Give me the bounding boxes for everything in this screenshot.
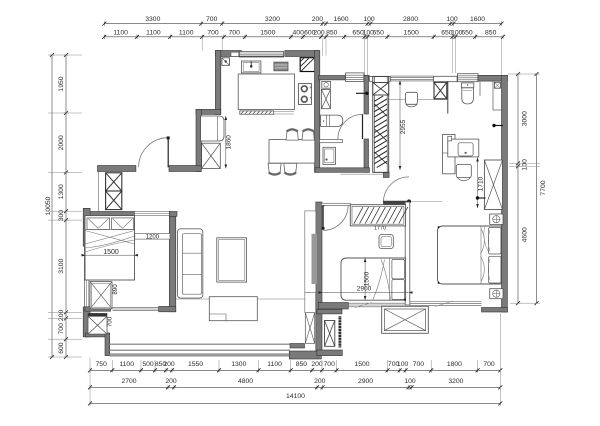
svg-text:1100: 1100 <box>146 29 161 36</box>
svg-text:1770: 1770 <box>374 226 386 232</box>
svg-text:500: 500 <box>142 361 154 368</box>
svg-text:100: 100 <box>404 378 416 385</box>
svg-text:1500: 1500 <box>354 361 369 368</box>
svg-text:1600: 1600 <box>470 16 485 23</box>
svg-text:100: 100 <box>446 16 458 23</box>
svg-text:3200: 3200 <box>265 16 280 23</box>
svg-text:850: 850 <box>485 29 497 36</box>
svg-text:1500: 1500 <box>260 29 275 36</box>
svg-text:650: 650 <box>461 29 473 36</box>
svg-text:1300: 1300 <box>231 361 246 368</box>
svg-text:700: 700 <box>58 323 65 335</box>
svg-text:1500: 1500 <box>404 29 419 36</box>
svg-text:1300: 1300 <box>58 184 65 199</box>
svg-text:4800: 4800 <box>238 378 253 385</box>
svg-text:1500: 1500 <box>363 271 370 286</box>
svg-text:3200: 3200 <box>448 378 463 385</box>
svg-text:200: 200 <box>163 361 175 368</box>
svg-text:2955: 2955 <box>400 119 407 134</box>
svg-text:3000: 3000 <box>522 111 529 126</box>
svg-text:1100: 1100 <box>267 361 282 368</box>
svg-text:650: 650 <box>373 29 385 36</box>
svg-text:850: 850 <box>326 29 338 36</box>
svg-text:1100: 1100 <box>119 361 134 368</box>
svg-text:100: 100 <box>522 159 529 171</box>
svg-text:100: 100 <box>363 16 375 23</box>
svg-text:3100: 3100 <box>58 258 65 273</box>
svg-text:600: 600 <box>58 342 65 354</box>
svg-text:700: 700 <box>483 361 495 368</box>
svg-text:100: 100 <box>397 361 409 368</box>
svg-text:1860: 1860 <box>226 135 233 150</box>
svg-text:1600: 1600 <box>333 16 348 23</box>
svg-text:200: 200 <box>313 29 325 36</box>
svg-text:200: 200 <box>58 310 65 322</box>
svg-text:4600: 4600 <box>522 227 529 242</box>
svg-text:10050: 10050 <box>45 196 52 215</box>
svg-text:200: 200 <box>314 378 326 385</box>
svg-text:14100: 14100 <box>286 393 305 400</box>
svg-text:200: 200 <box>311 361 323 368</box>
svg-text:700: 700 <box>229 29 241 36</box>
svg-text:1950: 1950 <box>58 76 65 91</box>
svg-text:850: 850 <box>296 361 308 368</box>
svg-text:1100: 1100 <box>179 29 194 36</box>
svg-text:1500: 1500 <box>103 249 119 256</box>
svg-text:700: 700 <box>324 361 336 368</box>
svg-text:700: 700 <box>413 361 425 368</box>
svg-text:700: 700 <box>207 29 219 36</box>
svg-text:2700: 2700 <box>121 378 136 385</box>
svg-text:200: 200 <box>165 378 177 385</box>
svg-text:2900: 2900 <box>358 378 373 385</box>
svg-text:7700: 7700 <box>540 180 547 195</box>
svg-text:2800: 2800 <box>403 16 418 23</box>
svg-text:1200: 1200 <box>146 234 160 240</box>
svg-text:700: 700 <box>206 16 218 23</box>
svg-text:2000: 2000 <box>58 135 65 150</box>
svg-text:1100: 1100 <box>113 29 128 36</box>
svg-text:700: 700 <box>107 316 114 327</box>
svg-text:750: 750 <box>96 361 108 368</box>
svg-text:200: 200 <box>312 16 324 23</box>
svg-text:890: 890 <box>112 284 119 295</box>
svg-text:1800: 1800 <box>447 361 462 368</box>
svg-text:1550: 1550 <box>188 361 203 368</box>
svg-text:3300: 3300 <box>145 16 160 23</box>
svg-text:400: 400 <box>293 29 305 36</box>
svg-text:1710: 1710 <box>478 176 485 191</box>
